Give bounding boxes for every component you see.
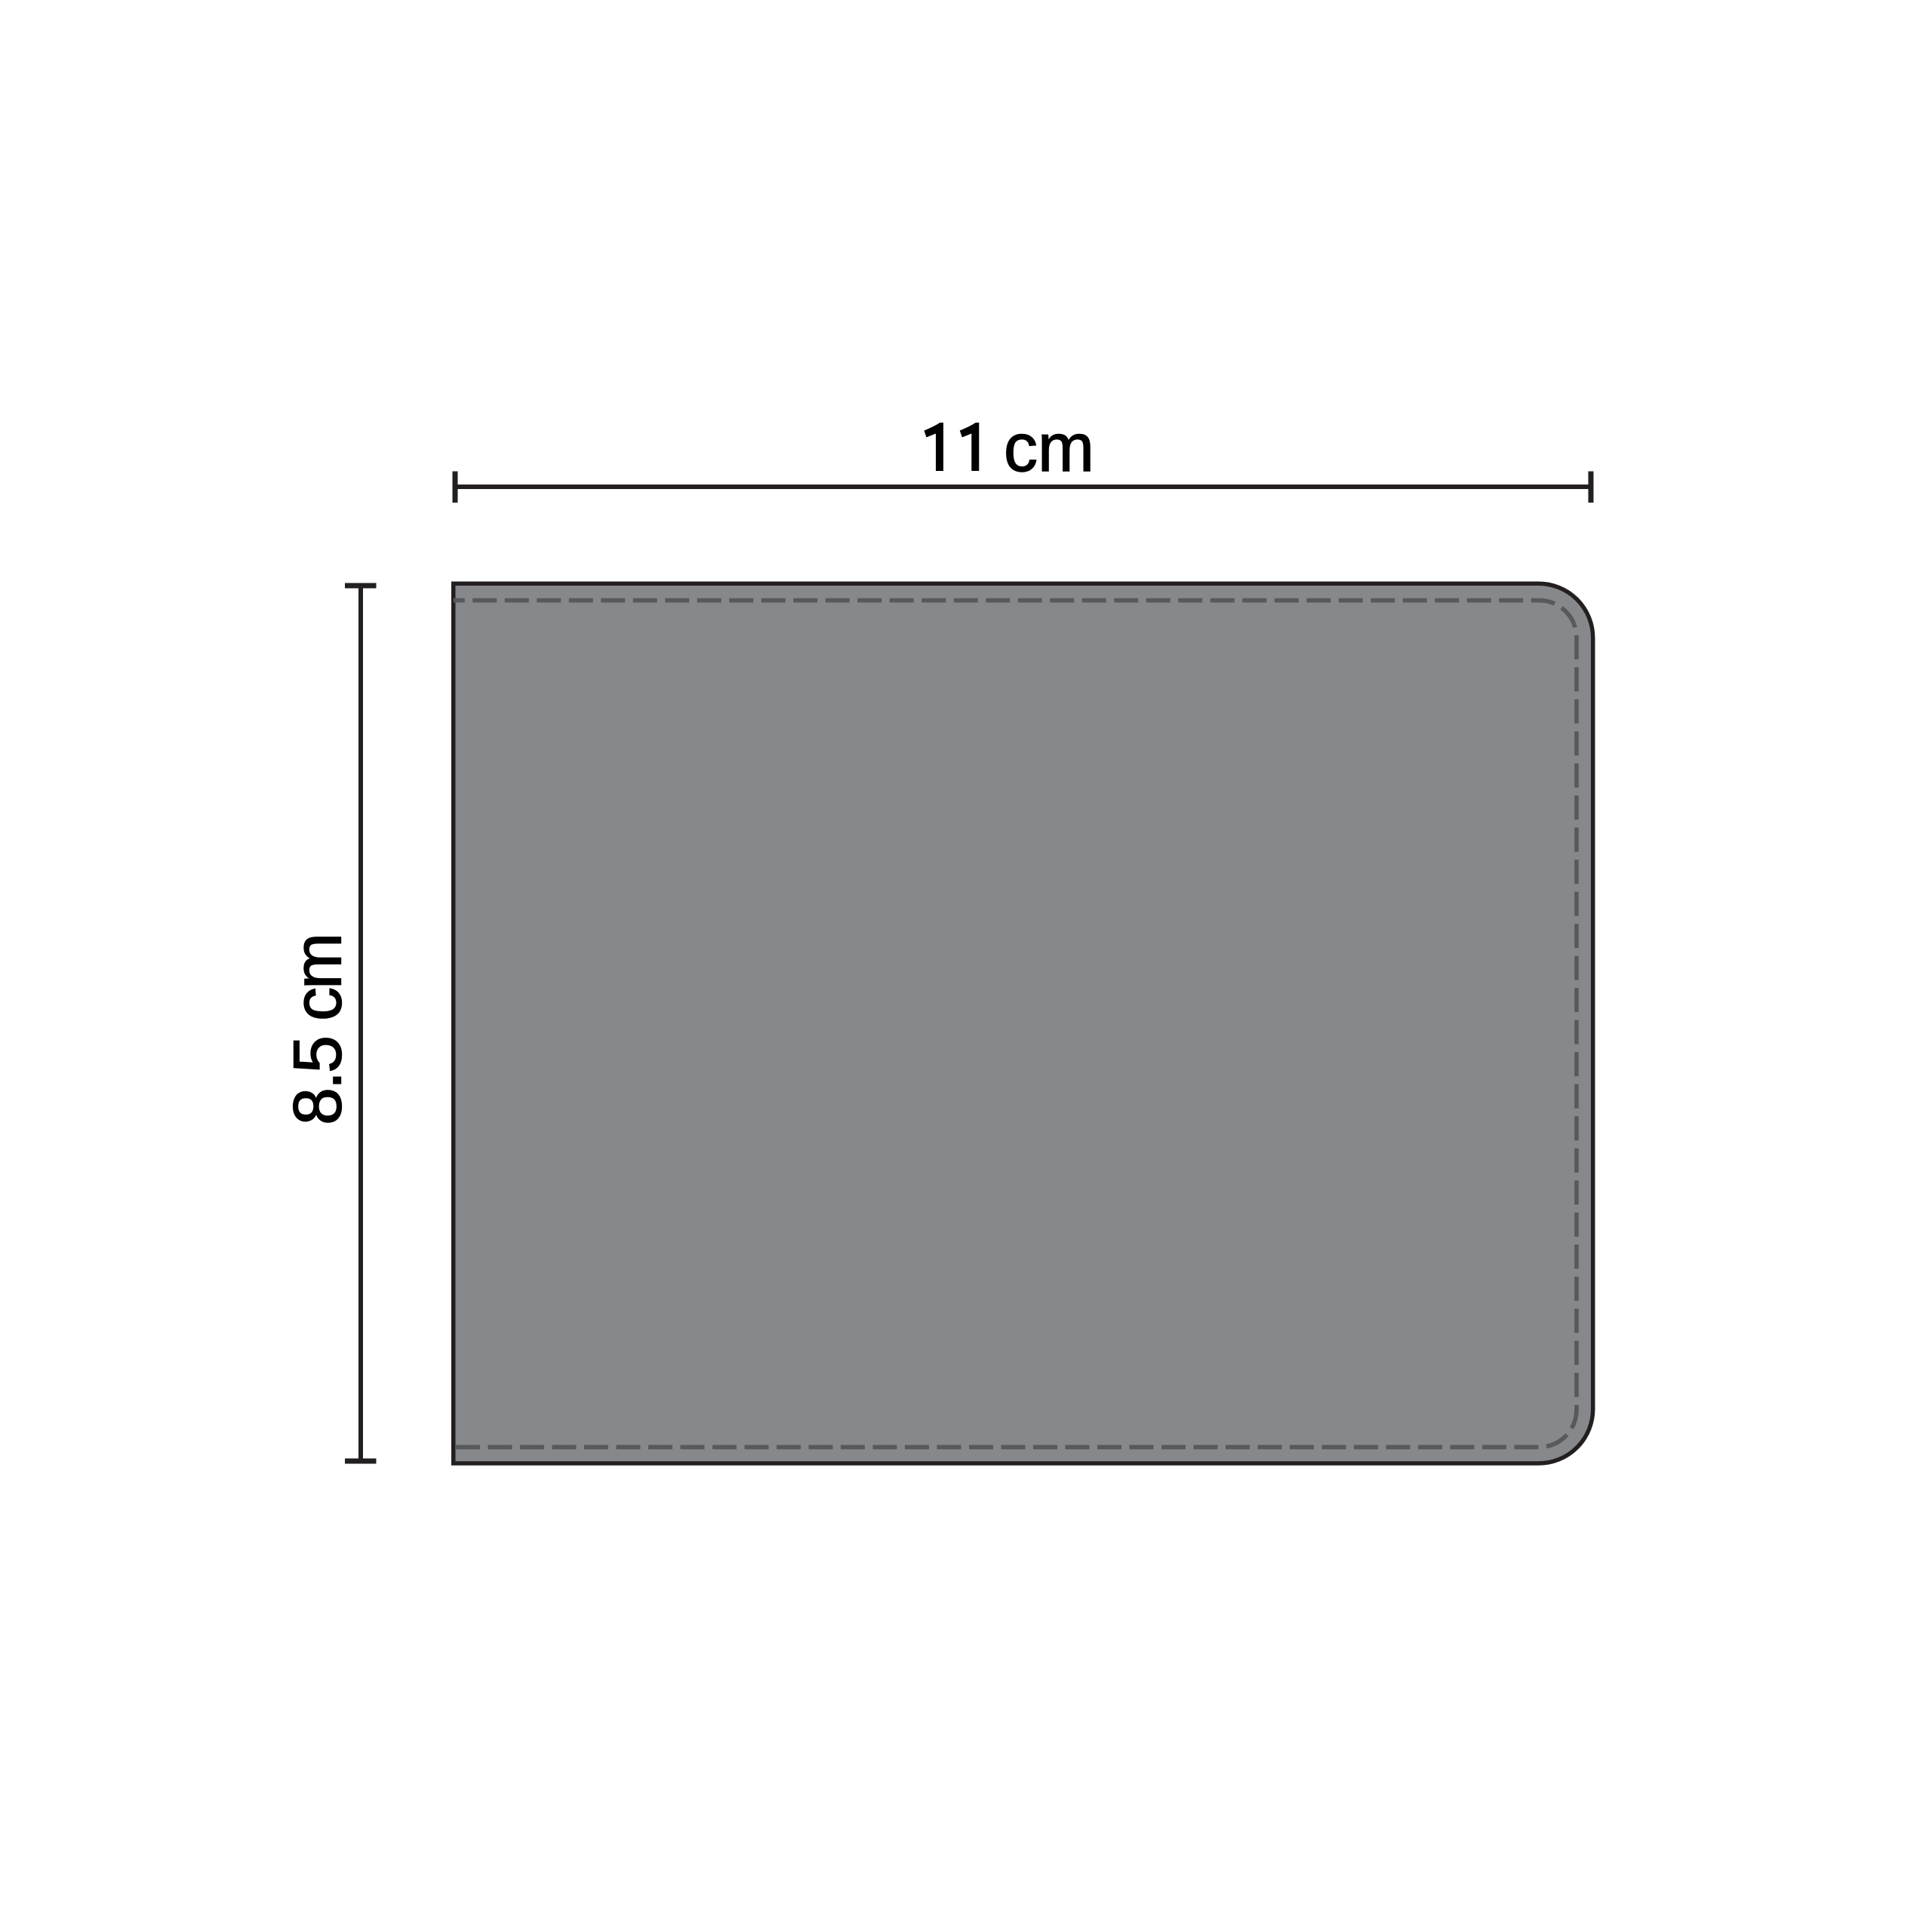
svg-text:cm: cm xyxy=(1004,411,1094,486)
svg-text:8.5 cm: 8.5 cm xyxy=(281,935,356,1125)
